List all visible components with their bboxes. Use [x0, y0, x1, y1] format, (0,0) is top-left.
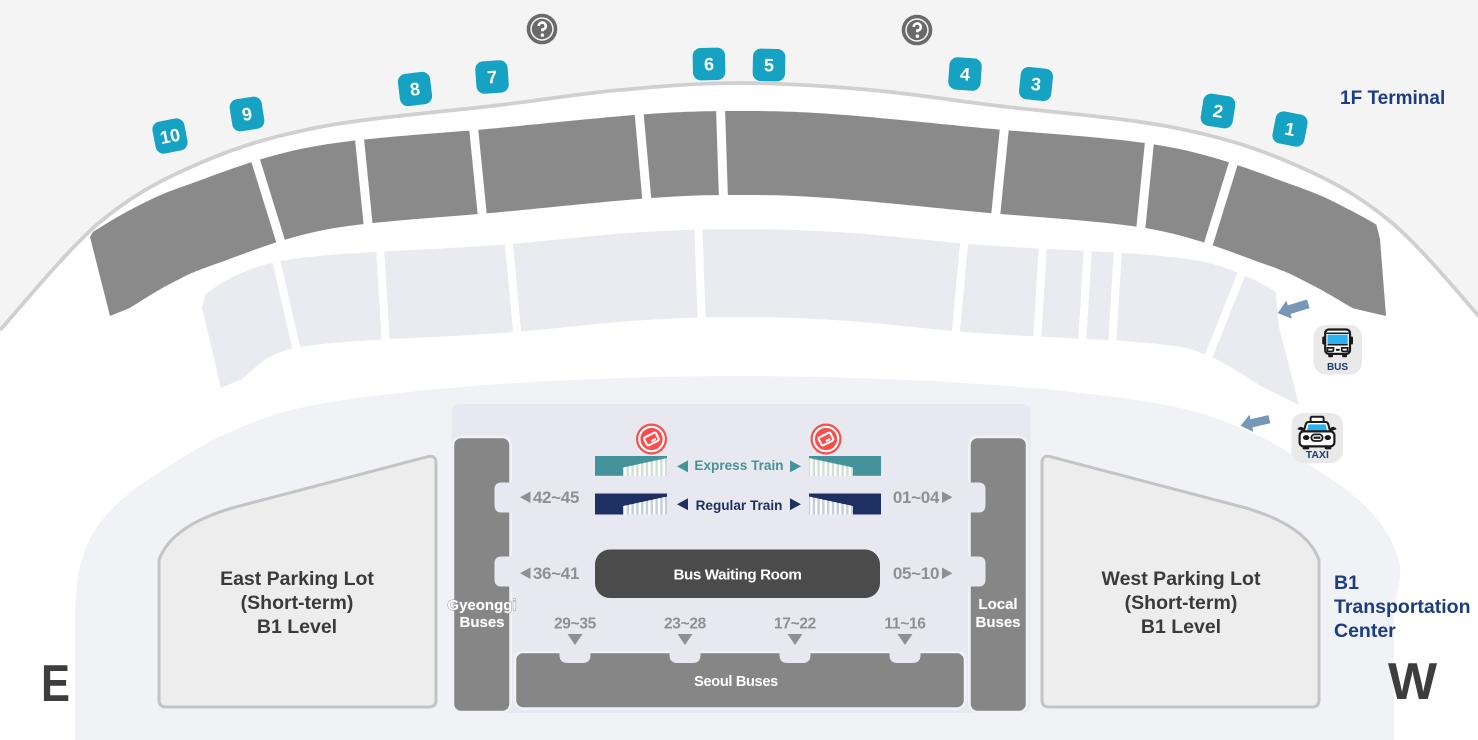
- svg-text:Bus Waiting Room: Bus Waiting Room: [673, 567, 801, 584]
- svg-text:W: W: [1388, 653, 1438, 711]
- svg-text:11~16: 11~16: [884, 616, 926, 633]
- svg-text:23~28: 23~28: [664, 616, 707, 633]
- svg-text:B1 Level: B1 Level: [1141, 616, 1221, 638]
- svg-text:B1: B1: [1334, 572, 1359, 594]
- svg-text:29~35: 29~35: [554, 616, 597, 633]
- svg-text:East Parking Lot: East Parking Lot: [220, 568, 374, 590]
- svg-text:Seoul Buses: Seoul Buses: [694, 674, 778, 690]
- svg-text:6: 6: [704, 54, 714, 74]
- svg-text:17~22: 17~22: [774, 616, 816, 633]
- svg-text:Center: Center: [1334, 620, 1396, 642]
- svg-text:05~10: 05~10: [893, 564, 939, 583]
- svg-text:E: E: [41, 655, 70, 713]
- svg-text:Regular Train: Regular Train: [696, 498, 783, 513]
- svg-text:4: 4: [959, 64, 970, 85]
- svg-text:1F Terminal: 1F Terminal: [1340, 88, 1445, 109]
- svg-text:3: 3: [1030, 74, 1042, 95]
- svg-text:42~45: 42~45: [533, 488, 579, 507]
- svg-text:Buses: Buses: [459, 614, 504, 631]
- svg-text:(Short-term): (Short-term): [241, 592, 354, 614]
- svg-text:West Parking Lot: West Parking Lot: [1102, 568, 1261, 590]
- svg-text:Express Train: Express Train: [694, 458, 783, 473]
- svg-text:01~04: 01~04: [893, 488, 940, 507]
- svg-text:BUS: BUS: [1327, 362, 1348, 373]
- svg-text:Buses: Buses: [975, 614, 1020, 631]
- svg-text:Transportation: Transportation: [1334, 596, 1471, 618]
- svg-text:TAXI: TAXI: [1306, 449, 1329, 461]
- svg-text:Gyeonggi: Gyeonggi: [447, 597, 516, 614]
- svg-text:B1 Level: B1 Level: [257, 616, 337, 638]
- svg-text:(Short-term): (Short-term): [1125, 592, 1238, 614]
- svg-text:5: 5: [764, 55, 774, 75]
- svg-text:10: 10: [158, 125, 181, 148]
- svg-text:36~41: 36~41: [533, 564, 579, 583]
- svg-text:Local: Local: [978, 596, 1017, 613]
- svg-text:7: 7: [486, 67, 497, 88]
